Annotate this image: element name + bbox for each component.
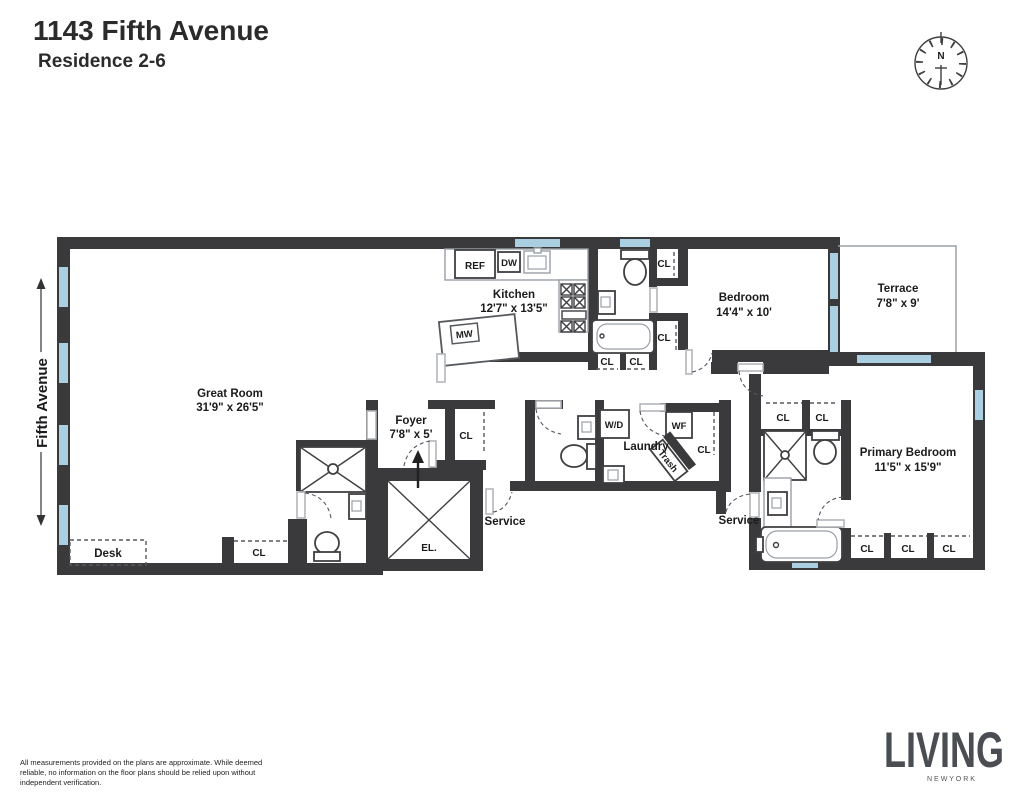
- closet-label: CL: [697, 445, 710, 456]
- service-label: Service: [485, 516, 526, 528]
- closet-label: CL: [776, 413, 789, 424]
- disclaimer-line: reliable, no information on the floor pl…: [20, 768, 256, 777]
- kitchen-label: Kitchen: [493, 289, 535, 301]
- shower-icon: [300, 447, 366, 492]
- brand-logo-sub: N E W Y O R K: [927, 776, 975, 783]
- desk: Desk: [70, 540, 146, 565]
- bedroom-dims: 14'4" x 10': [716, 307, 772, 319]
- elevator: EL.: [388, 481, 470, 559]
- brand-logo: LIVING: [884, 722, 1004, 778]
- toilet-icon: [314, 532, 340, 561]
- closet-label: CL: [815, 413, 828, 424]
- closet-label: CL: [657, 259, 670, 270]
- primary-bedroom-label: Primary Bedroom: [860, 447, 957, 459]
- desk-label: Desk: [94, 548, 122, 560]
- closet-label: CL: [459, 431, 472, 442]
- street-label: Fifth Avenue: [34, 278, 51, 526]
- terrace-label: Terrace: [878, 283, 919, 295]
- kitchen-dims: 12'7" x 13'5": [480, 303, 548, 315]
- primary-bedroom-dims: 11'5" x 15'9": [875, 462, 942, 474]
- footer: All measurements provided on the plans a…: [20, 722, 1004, 787]
- bath-3: [300, 447, 366, 561]
- wf-label: WF: [672, 421, 687, 432]
- plant-icon: [943, 327, 966, 350]
- great-room-dims: 31'9" x 26'5": [196, 402, 264, 414]
- bedroom-label: Bedroom: [719, 292, 769, 304]
- kitchen-island: MW: [439, 314, 519, 366]
- kitchen-sink-icon: [524, 248, 550, 273]
- terrace-dims: 7'8" x 9': [877, 298, 920, 310]
- compass-north-label: N: [937, 51, 944, 62]
- great-room-label: Great Room: [197, 388, 263, 400]
- closet-label: CL: [901, 544, 914, 555]
- toilet-icon: [812, 431, 839, 464]
- service-label: Service: [719, 515, 760, 527]
- refrigerator-label: REF: [465, 261, 485, 272]
- floor-plan: 1143 Fifth Avenue Residence 2-6 N: [0, 0, 1035, 800]
- bathtub-icon: [592, 320, 654, 353]
- dishwasher-label: DW: [501, 258, 517, 269]
- shower-icon: [764, 431, 806, 480]
- closet-label: CL: [942, 544, 955, 555]
- plant-icon: [940, 263, 963, 286]
- bathtub-icon: [756, 527, 842, 562]
- laundry-label: Laundry: [623, 441, 669, 453]
- street-name: Fifth Avenue: [34, 358, 51, 448]
- foyer-dims: 7'8" x 5': [390, 429, 433, 441]
- microwave-label: MW: [455, 329, 473, 342]
- washer-dryer-label: W/D: [605, 420, 624, 431]
- plant-icon: [939, 240, 962, 263]
- sink-icon: [598, 291, 615, 314]
- bath-2: [592, 250, 657, 353]
- closet-label: CL: [252, 548, 265, 559]
- toilet-icon: [621, 250, 649, 285]
- compass-icon: N: [915, 32, 967, 89]
- page-title: 1143 Fifth Avenue: [33, 15, 269, 46]
- laundry-sink-icon: [603, 466, 624, 483]
- page-subtitle: Residence 2-6: [38, 51, 166, 72]
- primary-bath: [756, 431, 842, 562]
- toilet-icon: [561, 444, 596, 469]
- closet-label: CL: [629, 357, 642, 368]
- closet-label: CL: [657, 333, 670, 344]
- sink-icon: [349, 494, 366, 519]
- closet-label: CL: [600, 357, 613, 368]
- elevator-label: EL.: [421, 543, 437, 554]
- disclaimer-line: independent verification.: [20, 778, 101, 787]
- sink-icon: [578, 416, 596, 439]
- closet-label: CL: [860, 544, 873, 555]
- foyer-label: Foyer: [395, 415, 427, 427]
- disclaimer-line: All measurements provided on the plans a…: [20, 758, 262, 767]
- vanity-sink-icon: [764, 478, 791, 529]
- floor-plan-page: 1143 Fifth Avenue Residence 2-6 N: [0, 0, 1035, 800]
